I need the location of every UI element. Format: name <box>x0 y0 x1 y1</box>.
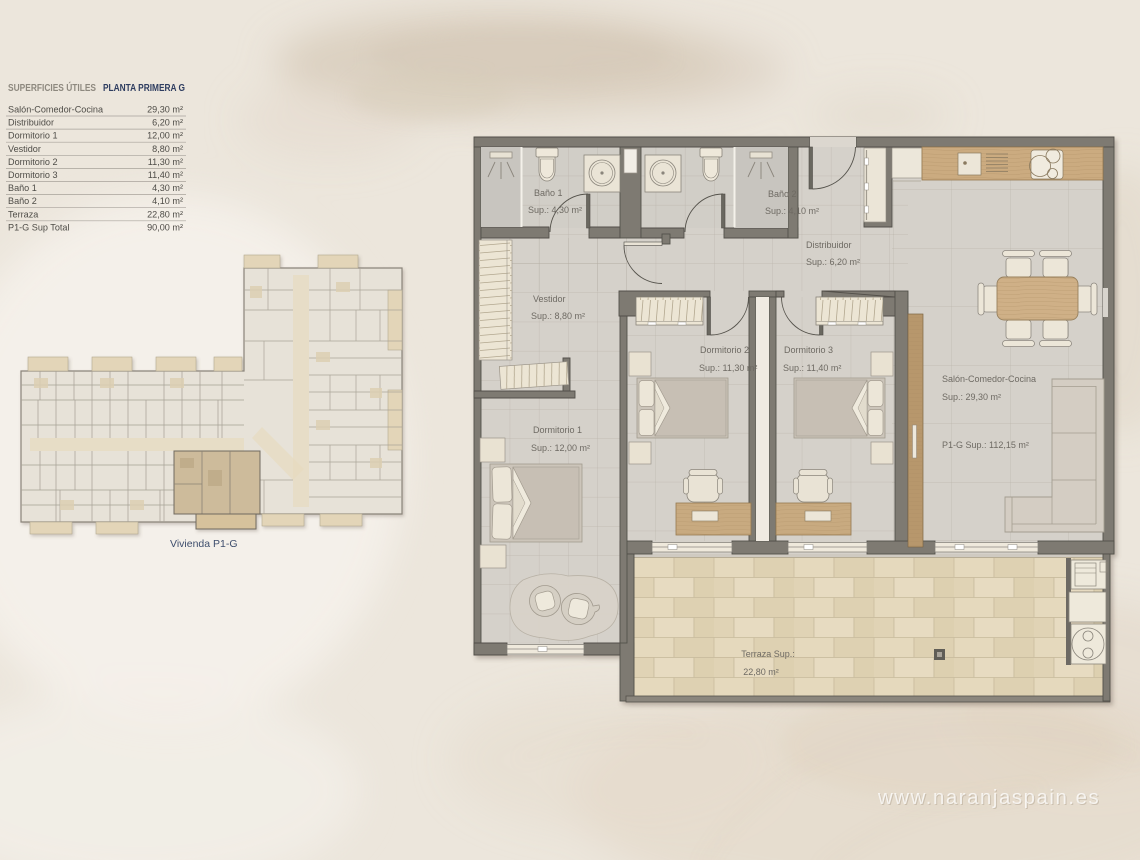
svg-text:Vestidor: Vestidor <box>533 294 566 304</box>
svg-text:Dormitorio 2: Dormitorio 2 <box>8 157 58 167</box>
svg-text:11,40 m²: 11,40 m² <box>148 170 183 180</box>
svg-text:4,30 m²: 4,30 m² <box>152 183 183 193</box>
svg-text:Dormitorio 1: Dormitorio 1 <box>8 131 58 141</box>
svg-text:P1-G Sup Total: P1-G Sup Total <box>8 222 70 232</box>
svg-text:Vestidor: Vestidor <box>8 144 41 154</box>
svg-text:12,00 m²: 12,00 m² <box>147 131 183 141</box>
svg-text:29,30 m²: 29,30 m² <box>147 105 183 115</box>
svg-text:4,10 m²: 4,10 m² <box>152 196 183 206</box>
svg-text:Dormitorio 3: Dormitorio 3 <box>784 345 833 355</box>
svg-text:Dormitorio 3: Dormitorio 3 <box>8 170 58 180</box>
svg-text:Distribuidor: Distribuidor <box>8 118 54 128</box>
svg-text:8,80 m²: 8,80 m² <box>152 144 183 154</box>
svg-text:Sup.: 29,30 m²: Sup.: 29,30 m² <box>942 392 1001 402</box>
svg-text:Baño 1: Baño 1 <box>534 188 563 198</box>
svg-text:Sup.: 4,30 m²: Sup.: 4,30 m² <box>528 205 582 215</box>
svg-text:22,80 m²: 22,80 m² <box>743 667 779 677</box>
svg-text:P1-G Sup.: 112,15 m²: P1-G Sup.: 112,15 m² <box>942 440 1029 450</box>
svg-text:Dormitorio 1: Dormitorio 1 <box>533 425 582 435</box>
svg-text:Sup.: 8,80 m²: Sup.: 8,80 m² <box>531 311 585 321</box>
svg-text:Terraza: Terraza <box>8 209 39 219</box>
svg-text:Sup.: 11,30 m²: Sup.: 11,30 m² <box>699 363 757 373</box>
svg-text:Sup.: 4,10 m²: Sup.: 4,10 m² <box>765 206 819 216</box>
svg-text:www.naranjaspain.es: www.naranjaspain.es <box>877 786 1100 809</box>
svg-text:11,30 m²: 11,30 m² <box>148 157 183 167</box>
svg-text:Salón-Comedor-Cocina: Salón-Comedor-Cocina <box>8 105 104 115</box>
svg-text:Vivienda P1-G: Vivienda P1-G <box>170 538 238 550</box>
svg-text:90,00 m²: 90,00 m² <box>147 222 183 232</box>
svg-text:SUPERFICIES ÚTILES: SUPERFICIES ÚTILES <box>8 81 96 94</box>
svg-text:Sup.: 12,00 m²: Sup.: 12,00 m² <box>531 443 590 453</box>
svg-text:Baño 1: Baño 1 <box>8 183 37 193</box>
svg-text:Distribuidor: Distribuidor <box>806 240 852 250</box>
svg-text:6,20 m²: 6,20 m² <box>152 118 183 128</box>
svg-text:Baño 2: Baño 2 <box>768 189 797 199</box>
svg-text:Salón-Comedor-Cocina: Salón-Comedor-Cocina <box>942 374 1036 384</box>
svg-text:Sup.: 11,40 m²: Sup.: 11,40 m² <box>783 363 841 373</box>
svg-text:PLANTA PRIMERA G: PLANTA PRIMERA G <box>103 83 185 94</box>
svg-text:22,80 m²: 22,80 m² <box>147 209 183 219</box>
svg-text:Sup.: 6,20 m²: Sup.: 6,20 m² <box>806 257 860 267</box>
svg-text:Terraza Sup.:: Terraza Sup.: <box>741 649 795 659</box>
svg-text:Baño 2: Baño 2 <box>8 196 37 206</box>
svg-text:Dormitorio 2: Dormitorio 2 <box>700 345 749 355</box>
